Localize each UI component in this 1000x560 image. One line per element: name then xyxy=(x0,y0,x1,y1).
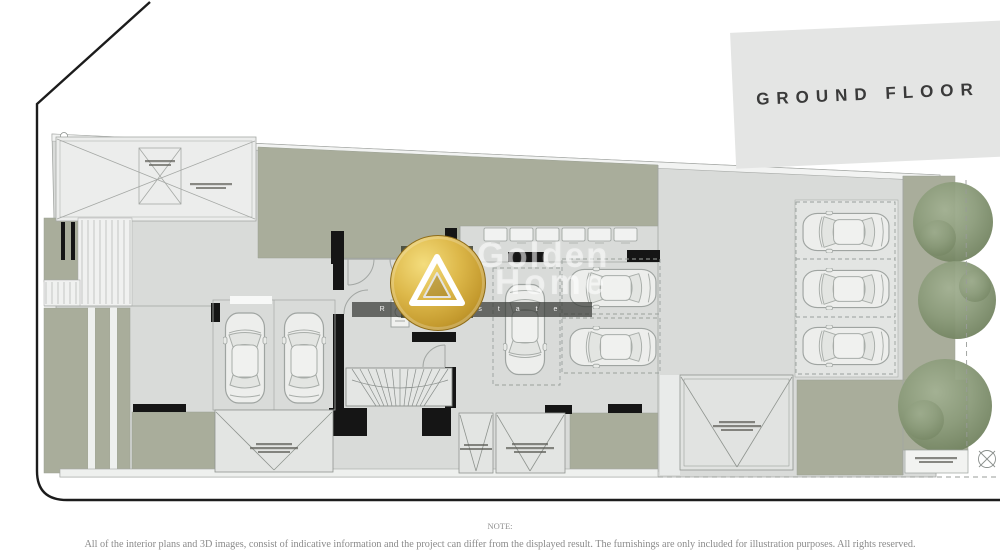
golden-home-logo xyxy=(390,235,484,329)
watermark-brand-word-2: Home xyxy=(495,263,608,303)
site-label-box xyxy=(905,450,968,473)
floor-title: GROUND FLOOR xyxy=(756,78,1000,109)
tree xyxy=(913,182,993,262)
logo-triangle-icon xyxy=(390,235,484,329)
staircase-fan xyxy=(346,368,452,406)
tree xyxy=(898,359,992,453)
car xyxy=(803,211,889,253)
tree xyxy=(918,261,996,339)
car xyxy=(570,326,656,368)
note-label: NOTE: xyxy=(0,521,1000,531)
compass-marker xyxy=(979,451,996,468)
car xyxy=(803,325,889,367)
note-disclaimer: All of the interior plans and 3D images,… xyxy=(0,539,1000,550)
car xyxy=(282,313,326,403)
car xyxy=(223,313,267,403)
floor-plan-page: R e a l E s t a t e Golden Home GROUND F… xyxy=(0,0,1000,560)
car xyxy=(803,268,889,310)
ramp-area xyxy=(215,410,333,472)
floor-title-banner: GROUND FLOOR xyxy=(730,19,1000,168)
entrance-ramp-area xyxy=(56,137,256,221)
ramp-area xyxy=(459,413,493,473)
ramp-area xyxy=(680,375,793,470)
ramp-area xyxy=(496,413,565,473)
